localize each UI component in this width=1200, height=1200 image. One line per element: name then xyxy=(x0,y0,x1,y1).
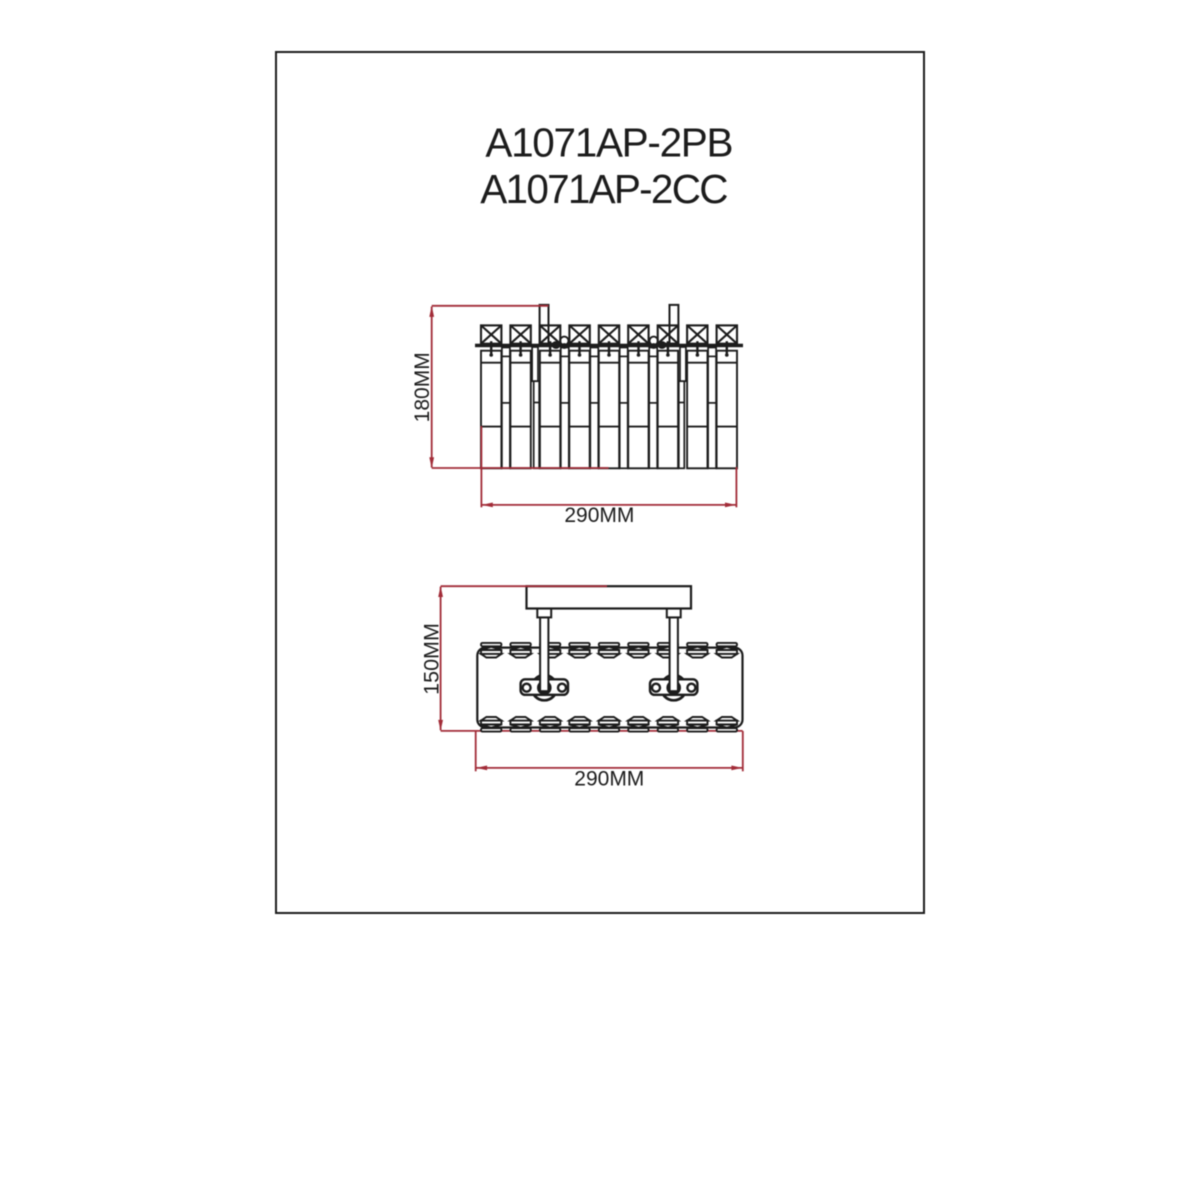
svg-text:290MM: 290MM xyxy=(574,768,644,791)
svg-text:180MM: 180MM xyxy=(411,352,434,422)
svg-text:A1071AP-2PB: A1071AP-2PB xyxy=(485,120,732,166)
svg-text:290MM: 290MM xyxy=(564,504,634,527)
svg-text:A1071AP-2CC: A1071AP-2CC xyxy=(480,166,727,212)
svg-text:150MM: 150MM xyxy=(420,623,444,695)
